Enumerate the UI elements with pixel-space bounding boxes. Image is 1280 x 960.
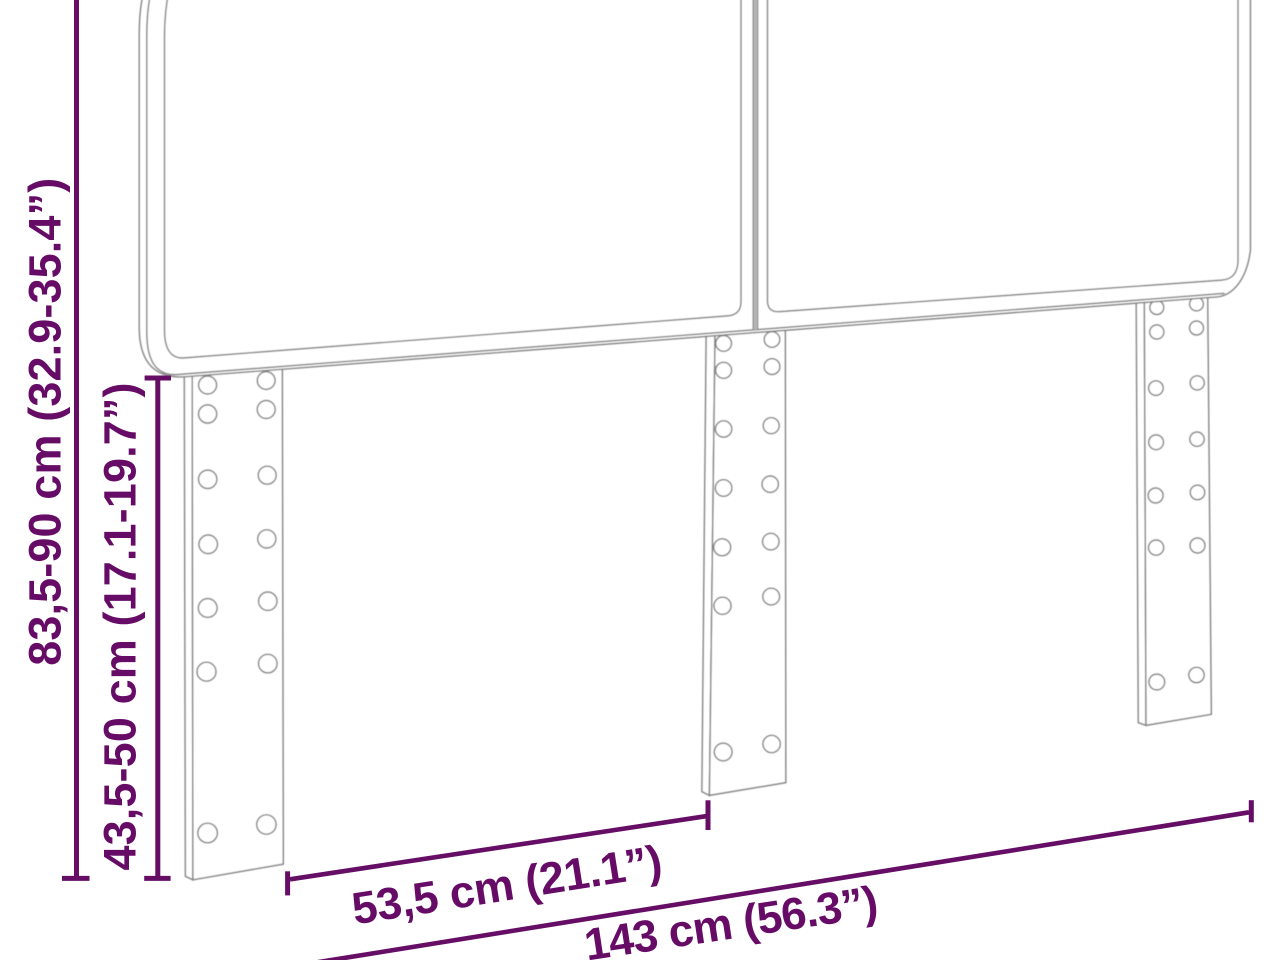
svg-text:43,5-50 cm (17.1-19.7”): 43,5-50 cm (17.1-19.7”) — [95, 383, 146, 871]
svg-text:83,5-90 cm (32.9-35.4”): 83,5-90 cm (32.9-35.4”) — [19, 178, 70, 666]
